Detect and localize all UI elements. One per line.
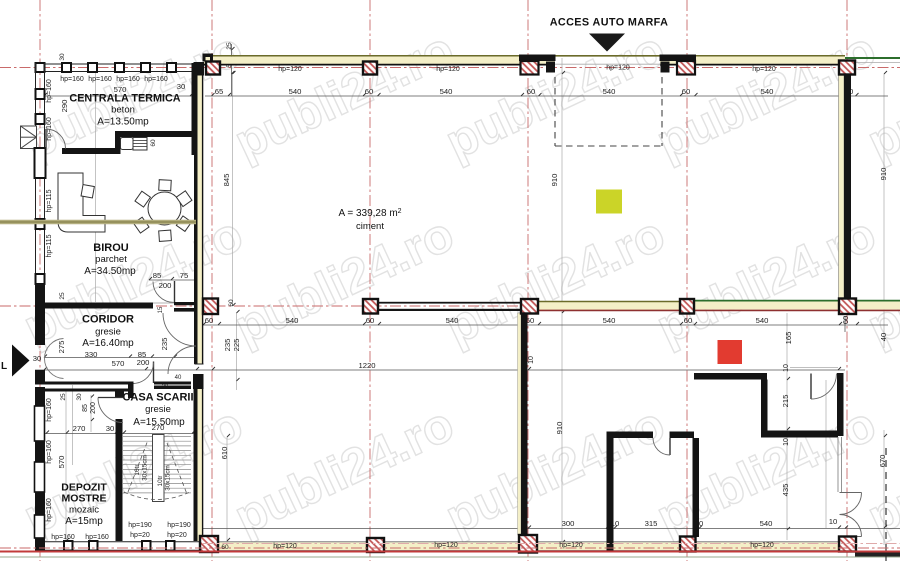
svg-text:200: 200 <box>90 402 97 414</box>
svg-text:hp=160: hp=160 <box>46 398 53 422</box>
svg-text:270: 270 <box>73 424 86 433</box>
svg-text:910: 910 <box>555 422 564 435</box>
svg-text:235: 235 <box>223 339 232 352</box>
svg-text:A=13.50mp: A=13.50mp <box>97 117 149 128</box>
svg-text:gresie: gresie <box>95 327 121 338</box>
svg-text:hp=20: hp=20 <box>130 532 150 539</box>
svg-text:75: 75 <box>180 271 189 280</box>
svg-text:200: 200 <box>159 281 172 290</box>
svg-text:30x15cm: 30x15cm <box>142 455 149 481</box>
svg-text:30: 30 <box>106 424 115 433</box>
svg-text:60: 60 <box>150 139 157 147</box>
svg-text:hp=115: hp=115 <box>46 234 53 257</box>
svg-text:hp=160: hp=160 <box>51 534 75 541</box>
svg-text:540: 540 <box>603 87 616 96</box>
svg-text:10: 10 <box>829 517 838 526</box>
svg-text:parchet: parchet <box>95 254 127 265</box>
svg-text:hp=160: hp=160 <box>88 76 112 83</box>
svg-text:hp=120: hp=120 <box>559 542 583 549</box>
svg-text:beton: beton <box>111 105 135 116</box>
svg-text:hp=115: hp=115 <box>46 189 53 212</box>
svg-text:hp=190: hp=190 <box>167 522 191 529</box>
svg-text:25: 25 <box>59 292 66 300</box>
svg-text:hp=120: hp=120 <box>273 543 297 550</box>
svg-text:60: 60 <box>366 316 375 325</box>
svg-text:300: 300 <box>562 519 575 528</box>
svg-text:hp=190: hp=190 <box>128 522 152 529</box>
svg-text:hp=20: hp=20 <box>167 532 187 539</box>
svg-text:540: 540 <box>756 316 769 325</box>
svg-text:1220: 1220 <box>358 361 375 370</box>
svg-text:540: 540 <box>761 87 774 96</box>
svg-text:A=15.50mp: A=15.50mp <box>133 417 185 428</box>
svg-text:hp=120: hp=120 <box>434 542 458 549</box>
svg-text:MOSTRE: MOSTRE <box>62 493 107 505</box>
svg-text:30: 30 <box>59 53 66 61</box>
svg-text:hp=120: hp=120 <box>436 66 460 73</box>
svg-text:hp=120: hp=120 <box>278 66 302 73</box>
svg-text:275: 275 <box>57 341 66 354</box>
svg-text:290: 290 <box>60 100 69 113</box>
svg-text:hp=160: hp=160 <box>144 76 168 83</box>
svg-text:ACCES AUTO MARFA: ACCES AUTO MARFA <box>550 17 669 29</box>
svg-text:215: 215 <box>781 395 790 408</box>
svg-text:30: 30 <box>177 82 186 91</box>
svg-text:hp=160: hp=160 <box>46 498 53 522</box>
svg-text:25: 25 <box>60 393 67 401</box>
svg-text:60: 60 <box>682 87 691 96</box>
svg-text:65: 65 <box>215 87 224 96</box>
svg-text:540: 540 <box>603 316 616 325</box>
svg-text:435: 435 <box>781 484 790 497</box>
svg-text:ciment: ciment <box>356 221 384 232</box>
svg-text:315: 315 <box>645 519 658 528</box>
svg-text:hp=160: hp=160 <box>116 76 140 83</box>
svg-text:165: 165 <box>784 332 793 345</box>
svg-text:330: 330 <box>85 350 98 359</box>
svg-text:845: 845 <box>222 174 231 187</box>
svg-text:540: 540 <box>289 87 302 96</box>
svg-text:40: 40 <box>175 375 182 381</box>
svg-text:85: 85 <box>153 271 162 280</box>
svg-text:85: 85 <box>82 404 89 412</box>
svg-text:610: 610 <box>220 447 229 460</box>
svg-text:200: 200 <box>137 358 150 367</box>
svg-text:10: 10 <box>783 438 790 446</box>
svg-text:CASA SCARII: CASA SCARII <box>122 392 193 404</box>
svg-text:60: 60 <box>841 316 850 325</box>
svg-text:30: 30 <box>76 393 83 401</box>
svg-text:mozaic: mozaic <box>69 505 99 516</box>
svg-text:570: 570 <box>57 456 66 469</box>
svg-text:60: 60 <box>527 87 536 96</box>
svg-text:540: 540 <box>760 519 773 528</box>
svg-text:L: L <box>1 361 7 372</box>
svg-text:CENTRALA TERMICA: CENTRALA TERMICA <box>69 93 180 105</box>
svg-text:910: 910 <box>879 168 888 181</box>
svg-text:hp=120: hp=120 <box>606 65 630 72</box>
svg-text:540: 540 <box>446 316 459 325</box>
svg-text:A=34.50mp: A=34.50mp <box>84 266 136 277</box>
svg-text:hp=160: hp=160 <box>85 534 109 541</box>
svg-text:570: 570 <box>112 359 125 368</box>
svg-text:60: 60 <box>228 299 235 307</box>
svg-text:60: 60 <box>365 87 374 96</box>
svg-text:60: 60 <box>205 316 214 325</box>
svg-text:60: 60 <box>684 316 693 325</box>
svg-text:10tr: 10tr <box>134 465 141 476</box>
svg-text:25: 25 <box>226 42 233 50</box>
svg-text:235: 235 <box>160 338 169 351</box>
svg-text:hp=120: hp=120 <box>752 66 776 73</box>
svg-text:BIROU: BIROU <box>93 242 129 254</box>
svg-text:30x15cm: 30x15cm <box>165 465 172 491</box>
svg-text:10: 10 <box>528 356 535 364</box>
svg-text:hp=120: hp=120 <box>750 542 774 549</box>
svg-text:10: 10 <box>783 364 790 372</box>
svg-text:540: 540 <box>286 316 299 325</box>
svg-text:10tr: 10tr <box>157 476 164 487</box>
svg-text:hp=160: hp=160 <box>46 440 53 464</box>
svg-text:540: 540 <box>440 87 453 96</box>
svg-text:hp=160: hp=160 <box>60 76 84 83</box>
svg-text:225: 225 <box>232 339 241 352</box>
svg-text:40: 40 <box>879 333 888 342</box>
svg-text:CORIDOR: CORIDOR <box>82 314 134 326</box>
svg-text:910: 910 <box>550 174 559 187</box>
svg-text:gresie: gresie <box>145 404 171 415</box>
svg-text:30: 30 <box>33 354 42 363</box>
svg-text:hp=160: hp=160 <box>46 79 53 103</box>
svg-text:A=15mp: A=15mp <box>65 516 103 527</box>
svg-text:15: 15 <box>158 306 164 313</box>
svg-text:60: 60 <box>221 544 229 551</box>
svg-text:A = 339,28 m2: A = 339,28 m2 <box>338 208 401 219</box>
svg-text:A=16.40mp: A=16.40mp <box>82 338 134 349</box>
